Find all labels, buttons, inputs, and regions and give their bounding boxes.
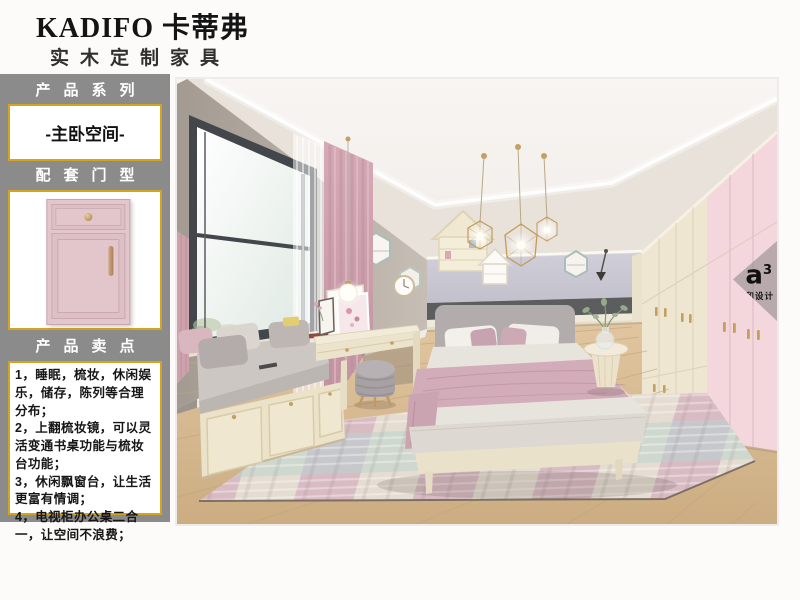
selling-point: 4，电视柜办公桌二合一，让空间不浪费； [15, 509, 155, 545]
bedroom-illustration [177, 79, 777, 524]
selling-points-label: 产品卖点 [0, 339, 170, 354]
pouf-stool [354, 360, 396, 410]
door-handle-icon [108, 246, 113, 276]
brand-subtitle: 实木定制家具 [50, 43, 230, 70]
series-label: 产品系列 [0, 83, 170, 98]
selling-point: 2，上翻梳妆镜，可以灵活变通书桌功能与梳妆台功能； [15, 420, 155, 473]
sidebar: 产品系列 -主卧空间- 配套门型 产品卖点 1，睡眠，梳妆，休闲娱乐，储存，陈列… [0, 74, 170, 522]
wall-clock-icon [394, 276, 414, 296]
series-value: -主卧空间- [45, 120, 124, 145]
brand-title: KADIFO 卡蒂弗 [36, 6, 249, 46]
selling-points-box: 1，睡眠，梳妆，休闲娱乐，储存，陈列等合理分布； 2，上翻梳妆镜，可以灵活变通书… [8, 361, 162, 515]
pillow [197, 334, 248, 370]
series-value-box: -主卧空间- [8, 104, 162, 161]
poster-page: KADIFO 卡蒂弗 实木定制家具 产品系列 -主卧空间- 配套门型 产品卖点 … [0, 0, 800, 600]
door-knob-icon [84, 213, 92, 221]
hexagon-shelf-icon [565, 251, 587, 277]
selling-point: 1，睡眠，梳妆，休闲娱乐，储存，陈列等合理分布； [15, 367, 155, 420]
door-type-label: 配套门型 [0, 168, 170, 183]
cabinet-door-preview [46, 199, 130, 325]
door-preview-box [8, 190, 162, 330]
selling-point: 3，休闲飘窗台，让生活更富有情调； [15, 474, 155, 510]
bedroom-render-photo: a3 家和设计 [175, 77, 779, 526]
left-curtain [177, 231, 189, 384]
pillow [283, 316, 300, 326]
door-drawer [51, 204, 125, 230]
door-panel [51, 233, 125, 319]
